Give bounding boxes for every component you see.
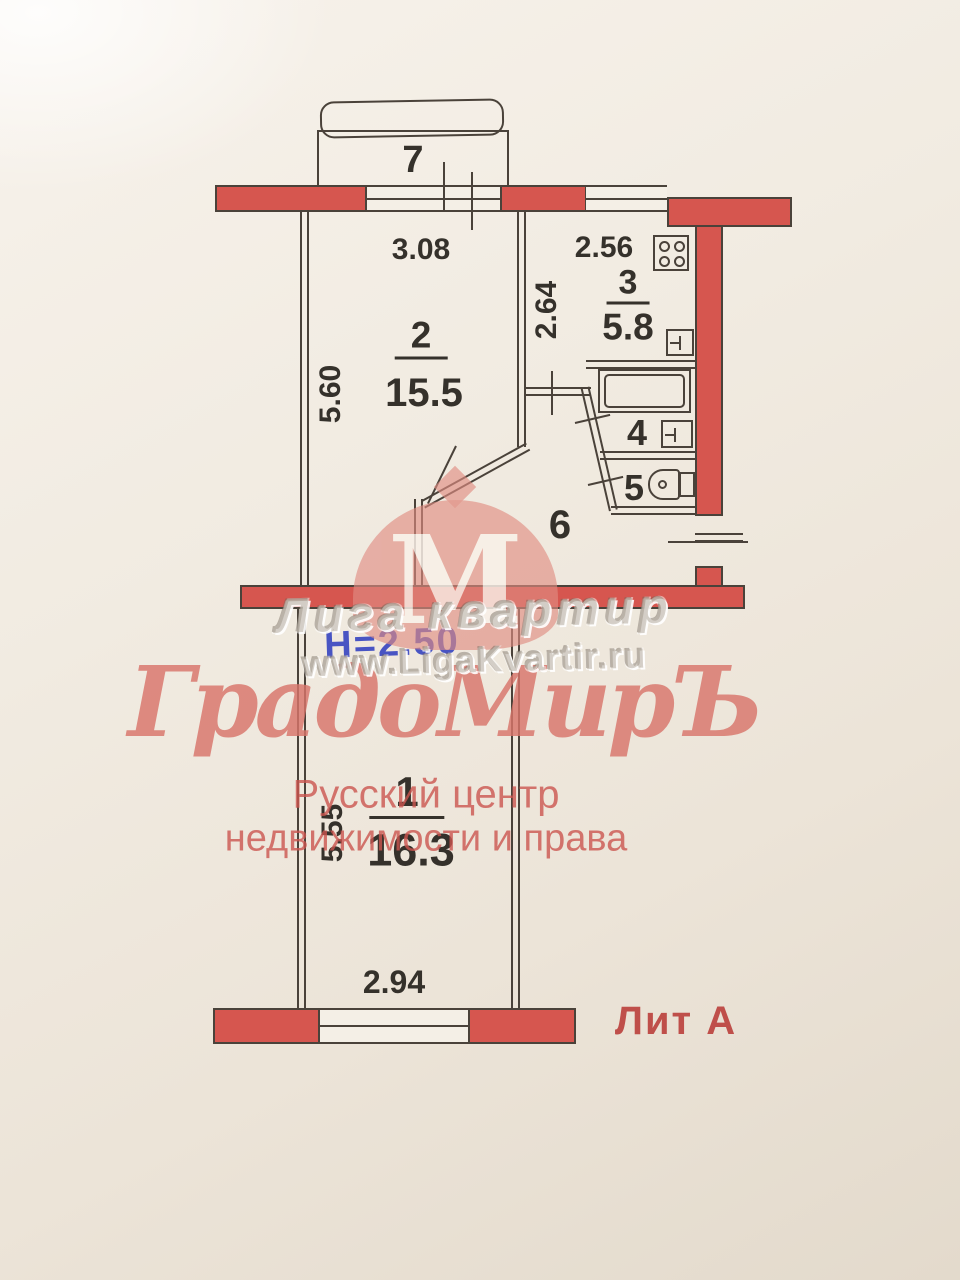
kitchen-door-tick [551, 371, 553, 415]
wall-room2-left [300, 211, 309, 587]
washbasin-tap [674, 428, 676, 442]
washbasin-icon [661, 420, 693, 448]
kitchen-width-dim: 2.56 [575, 233, 633, 263]
room1-width-dim: 2.94 [363, 966, 425, 998]
window-room2 [367, 185, 500, 212]
entry-door-tick [668, 541, 748, 543]
wall-right [695, 225, 723, 516]
room2-height-dim: 5.60 [316, 365, 346, 423]
wall-bath-wc-partition [600, 451, 696, 460]
bathtub-inner [604, 374, 685, 408]
window-divider-tick [443, 162, 445, 212]
wall-kitchen-left [517, 211, 526, 447]
window-room1 [320, 1008, 468, 1044]
gradomir-subtitle-1: Русский центр [293, 773, 560, 818]
wc-number: 5 [624, 470, 644, 506]
room2-width-dim: 3.08 [392, 235, 450, 265]
kitchen-height-dim: 2.64 [532, 281, 562, 339]
kitchen-number: 3 [607, 266, 650, 305]
room2-number: 2 [395, 317, 448, 360]
window-pane-line [367, 198, 500, 200]
stove-burner [674, 256, 685, 267]
kitchen-area: 5.8 [602, 309, 653, 346]
bathtub-icon [598, 369, 691, 413]
wall-top-left [215, 185, 367, 212]
room2-area: 15.5 [385, 373, 463, 413]
wall-top-middle [500, 185, 587, 212]
stove-icon [653, 235, 689, 271]
litera-label: Лит А [615, 1001, 737, 1041]
stove-burner [659, 256, 670, 267]
sink-tap [679, 336, 681, 350]
window-tick [471, 172, 473, 230]
wall-top-right-arm [667, 197, 792, 227]
wall-bottom-right [468, 1008, 576, 1044]
toilet-icon [648, 469, 695, 500]
balcony-number: 7 [402, 141, 423, 179]
toilet-tank [679, 472, 695, 497]
wall-bathroom-top [586, 360, 696, 369]
balcony-railing-outline [320, 98, 505, 138]
floor-plan-photo: 7 3.08 2 15.5 5.60 2.56 2.64 3 5.8 4 5 6… [0, 0, 960, 1280]
stove-burner [659, 241, 670, 252]
stove-burner [674, 241, 685, 252]
wall-bottom-left [213, 1008, 320, 1044]
gradomir-subtitle-2: недвижимости и права [225, 818, 628, 861]
toilet-bowl [648, 469, 680, 500]
sink-icon [666, 329, 694, 356]
window-kitchen [586, 185, 667, 212]
window-pane-line [586, 198, 667, 200]
window-pane-line [320, 1025, 468, 1027]
bathroom-number: 4 [627, 415, 647, 451]
